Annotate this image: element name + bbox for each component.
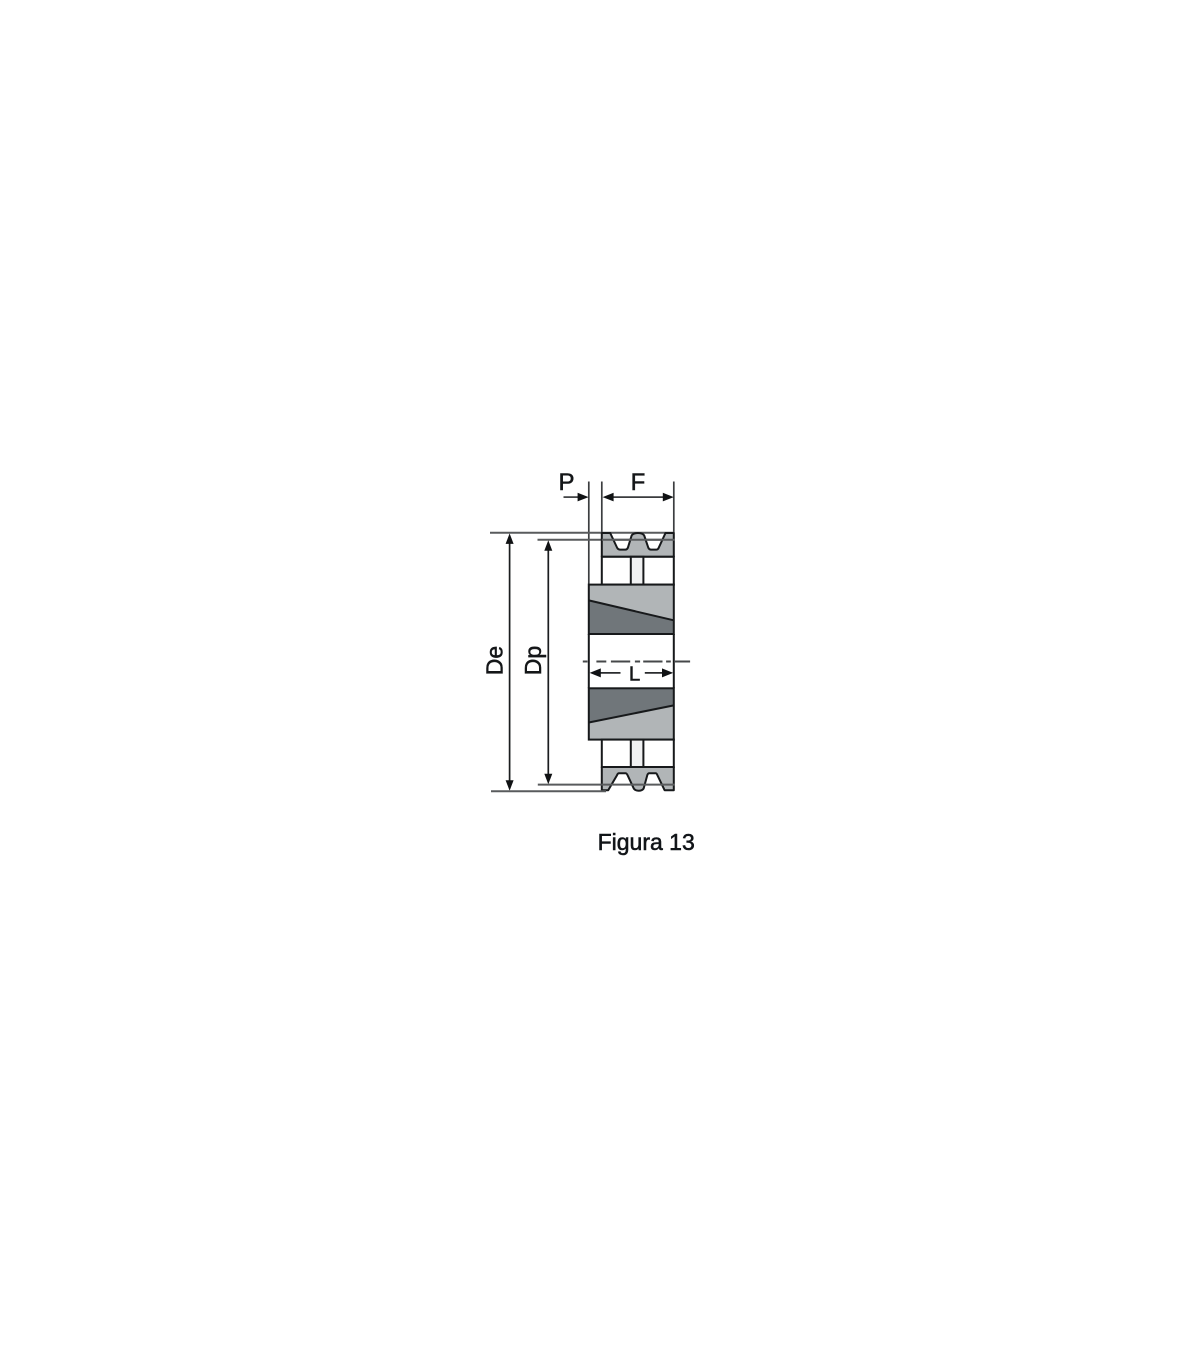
svg-text:Figura 13: Figura 13 [598, 829, 695, 855]
svg-text:P: P [558, 469, 574, 496]
svg-text:Dp: Dp [520, 646, 546, 675]
svg-text:De: De [481, 646, 507, 675]
svg-text:L: L [629, 662, 640, 685]
svg-text:F: F [631, 469, 646, 496]
